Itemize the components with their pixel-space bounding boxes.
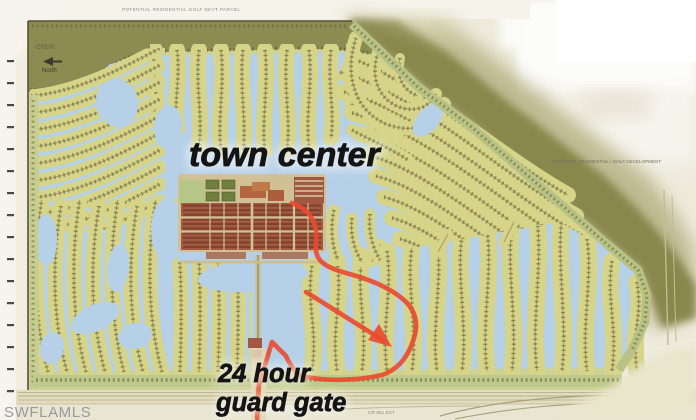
- svg-text:CREW: CREW: [36, 45, 55, 51]
- svg-text:POTENTIAL RESIDENTIAL / GOLF D: POTENTIAL RESIDENTIAL / GOLF DEVELOPMENT: [552, 159, 662, 164]
- svg-text:SWFLAMLS: SWFLAMLS: [4, 404, 91, 420]
- svg-text:town center: town center: [189, 136, 382, 174]
- svg-text:CR 951 EXT: CR 951 EXT: [368, 410, 395, 416]
- svg-text:24 hour: 24 hour: [217, 360, 312, 388]
- svg-text:North: North: [42, 68, 57, 74]
- svg-text:POTENTIAL RESIDENTIAL GOLF DEV: POTENTIAL RESIDENTIAL GOLF DEVT PARCEL: [122, 7, 240, 12]
- svg-text:guard gate: guard gate: [215, 389, 346, 417]
